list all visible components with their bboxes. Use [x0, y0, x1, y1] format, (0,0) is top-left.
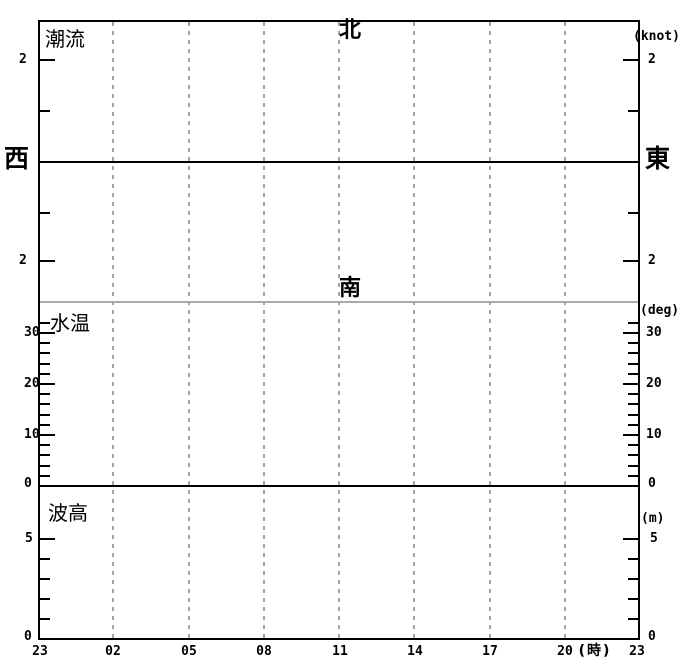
- axis-tick-left: [40, 475, 50, 477]
- axis-tick-right: [628, 618, 638, 620]
- axis-tick-left: [40, 373, 50, 375]
- xtick-08: 08: [256, 645, 272, 658]
- axis-tick-right: [623, 332, 638, 334]
- axis-tick-left: [40, 578, 50, 580]
- axis-tick-right: [628, 342, 638, 344]
- unit-knot-label: (knot): [633, 30, 680, 43]
- xtick-02: 02: [105, 645, 121, 658]
- axis-tick-left: [40, 342, 50, 344]
- axis-tick-left: [40, 444, 50, 446]
- axis-tick-right: [628, 110, 638, 112]
- axis-tick-right: [623, 538, 638, 540]
- current-2s-right: 2: [648, 254, 656, 267]
- wave-0-left: 0: [24, 630, 32, 643]
- axis-tick-left: [40, 212, 50, 214]
- axis-tick-left: [40, 403, 50, 405]
- axis-tick-right: [623, 434, 638, 436]
- xtick-11: 11: [332, 645, 348, 658]
- axis-tick-left: [40, 454, 50, 456]
- axis-tick-left: [40, 383, 55, 385]
- axis-tick-right: [623, 383, 638, 385]
- axis-tick-right: [628, 414, 638, 416]
- panel-title-watertemp: 水温: [50, 313, 90, 333]
- current-2n-left: 2: [19, 53, 27, 66]
- xtick-05: 05: [181, 645, 197, 658]
- xtick-20: 20: [557, 645, 573, 658]
- xaxis-hour-unit: (時): [579, 644, 612, 658]
- direction-north-label: 北: [339, 20, 361, 42]
- wave-5-right: 5: [650, 532, 658, 545]
- axis-tick-right: [623, 59, 638, 61]
- axis-tick-left: [40, 110, 50, 112]
- unit-m-label: (m): [641, 512, 664, 525]
- direction-east-label: 東: [645, 146, 670, 171]
- axis-tick-right: [623, 260, 638, 262]
- axis-tick-left: [40, 538, 55, 540]
- temp-20-left: 20: [24, 377, 40, 390]
- xtick-17: 17: [482, 645, 498, 658]
- temp-0-right: 0: [648, 477, 656, 490]
- axis-tick-left: [40, 393, 50, 395]
- axis-tick-left: [40, 414, 50, 416]
- axis-tick-left: [40, 558, 50, 560]
- temp-10-right: 10: [646, 428, 662, 441]
- axis-tick-left: [40, 598, 50, 600]
- axis-tick-right: [628, 598, 638, 600]
- xtick-14: 14: [407, 645, 423, 658]
- temp-30-right: 30: [646, 326, 662, 339]
- axis-tick-left: [40, 434, 55, 436]
- axis-tick-right: [628, 558, 638, 560]
- plot-border: [38, 20, 640, 640]
- axis-tick-right: [628, 403, 638, 405]
- wave-5-left: 5: [25, 532, 33, 545]
- axis-tick-right: [628, 454, 638, 456]
- wave-0-right: 0: [648, 630, 656, 643]
- tide-weather-chart: 潮流北(knot)22西東22南水温(deg)30302020101000波高(…: [0, 0, 680, 660]
- axis-tick-right: [628, 465, 638, 467]
- axis-tick-left: [40, 465, 50, 467]
- axis-tick-right: [628, 322, 638, 324]
- axis-tick-left: [40, 260, 55, 262]
- xtick-23-start: 23: [32, 645, 48, 658]
- axis-tick-left: [40, 352, 50, 354]
- panel-title-current: 潮流: [45, 29, 85, 49]
- temp-20-right: 20: [646, 377, 662, 390]
- axis-tick-left: [40, 322, 50, 324]
- current-2n-right: 2: [648, 53, 656, 66]
- unit-deg-label: (deg): [640, 304, 679, 317]
- temp-10-left: 10: [24, 428, 40, 441]
- temp-0-left: 0: [24, 477, 32, 490]
- axis-tick-left: [40, 424, 50, 426]
- axis-tick-left: [40, 363, 50, 365]
- axis-tick-left: [40, 59, 55, 61]
- xtick-23-end: 23: [629, 645, 645, 658]
- axis-tick-right: [628, 444, 638, 446]
- axis-tick-right: [628, 475, 638, 477]
- direction-west-label: 西: [4, 146, 29, 171]
- current-2s-left: 2: [19, 254, 27, 267]
- axis-tick-left: [40, 618, 50, 620]
- panel-title-waveheight: 波高: [48, 503, 88, 523]
- axis-tick-right: [628, 578, 638, 580]
- axis-tick-right: [628, 363, 638, 365]
- axis-tick-right: [628, 373, 638, 375]
- temp-30-left: 30: [24, 326, 40, 339]
- axis-tick-right: [628, 393, 638, 395]
- axis-tick-right: [628, 212, 638, 214]
- axis-tick-right: [628, 424, 638, 426]
- direction-south-label: 南: [339, 278, 361, 300]
- axis-tick-right: [628, 352, 638, 354]
